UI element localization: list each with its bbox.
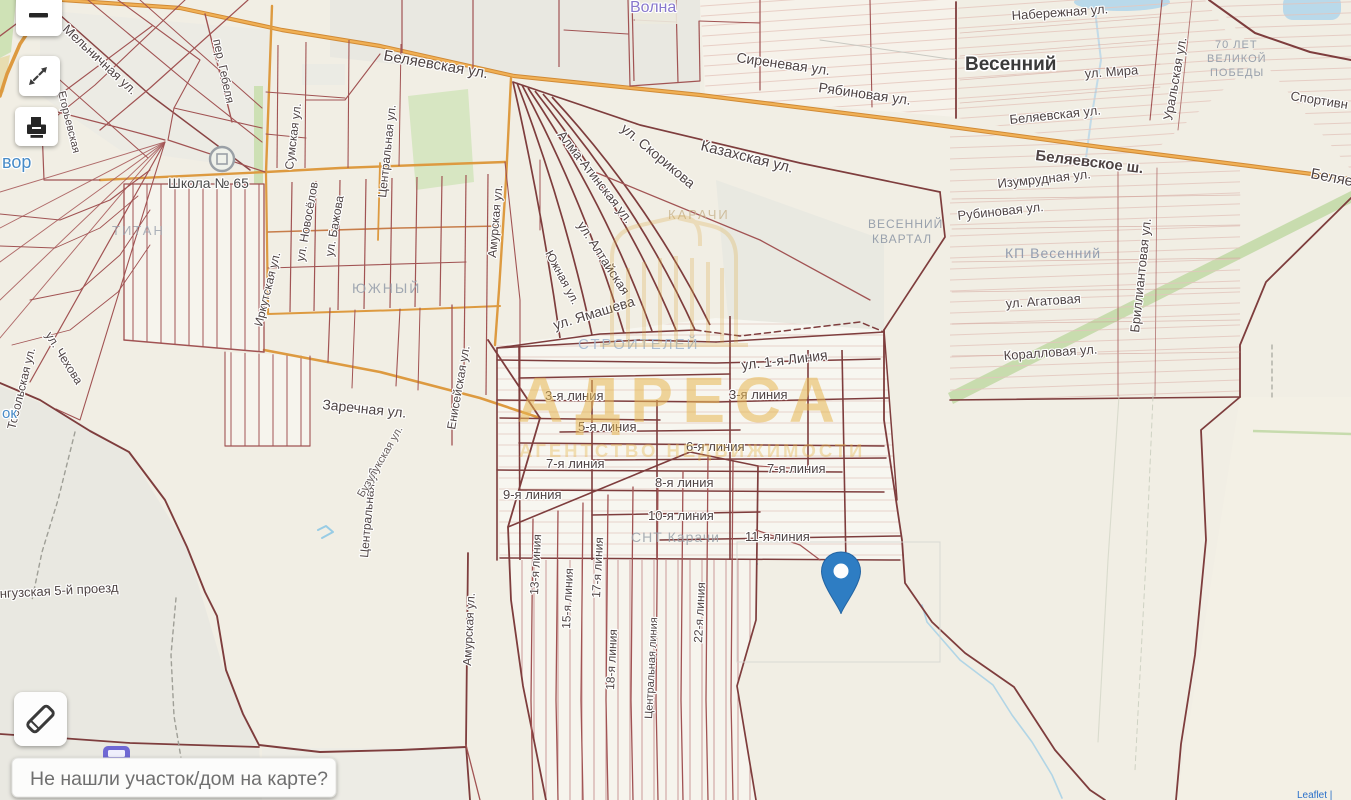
svg-text:ВЕЛИКОЙ: ВЕЛИКОЙ <box>1207 52 1267 65</box>
svg-text:7-я линия: 7-я линия <box>767 461 826 476</box>
svg-text:9-я линия: 9-я линия <box>503 487 562 502</box>
svg-text:Волна: Волна <box>630 0 676 16</box>
svg-text:Школа № 65: Школа № 65 <box>168 175 249 191</box>
svg-text:Leaflet |: Leaflet | <box>1297 790 1332 800</box>
svg-text:ПОБЕДЫ: ПОБЕДЫ <box>1210 67 1264 79</box>
svg-text:КАРАЧИ: КАРАЧИ <box>668 207 730 222</box>
svg-text:ок: ок <box>2 405 17 422</box>
svg-text:Не нашли участок/дом на карте?: Не нашли участок/дом на карте? <box>30 768 328 790</box>
svg-text:ВЕСЕННИЙ: ВЕСЕННИЙ <box>868 216 943 231</box>
svg-text:ТИТАН: ТИТАН <box>112 223 165 238</box>
svg-text:КВАРТАЛ: КВАРТАЛ <box>872 232 932 246</box>
svg-text:8-я линия: 8-я линия <box>655 475 714 490</box>
svg-text:Весенний: Весенний <box>965 54 1056 75</box>
svg-text:АГЕНТСТВО НЕДВИЖИМОСТИ: АГЕНТСТВО НЕДВИЖИМОСТИ <box>519 440 865 461</box>
svg-text:ЮЖНЫЙ: ЮЖНЫЙ <box>352 279 421 296</box>
svg-text:11-я линия: 11-я линия <box>745 529 810 544</box>
svg-text:70 ЛЕТ: 70 ЛЕТ <box>1215 39 1258 51</box>
svg-text:АДРЕСА: АДРЕСА <box>517 364 844 436</box>
svg-text:10-я линия: 10-я линия <box>648 508 714 523</box>
svg-text:КП Весенний: КП Весенний <box>1005 245 1101 261</box>
svg-text:вор: вор <box>2 152 31 172</box>
svg-text:СНТ Карачи: СНТ Карачи <box>631 529 720 545</box>
